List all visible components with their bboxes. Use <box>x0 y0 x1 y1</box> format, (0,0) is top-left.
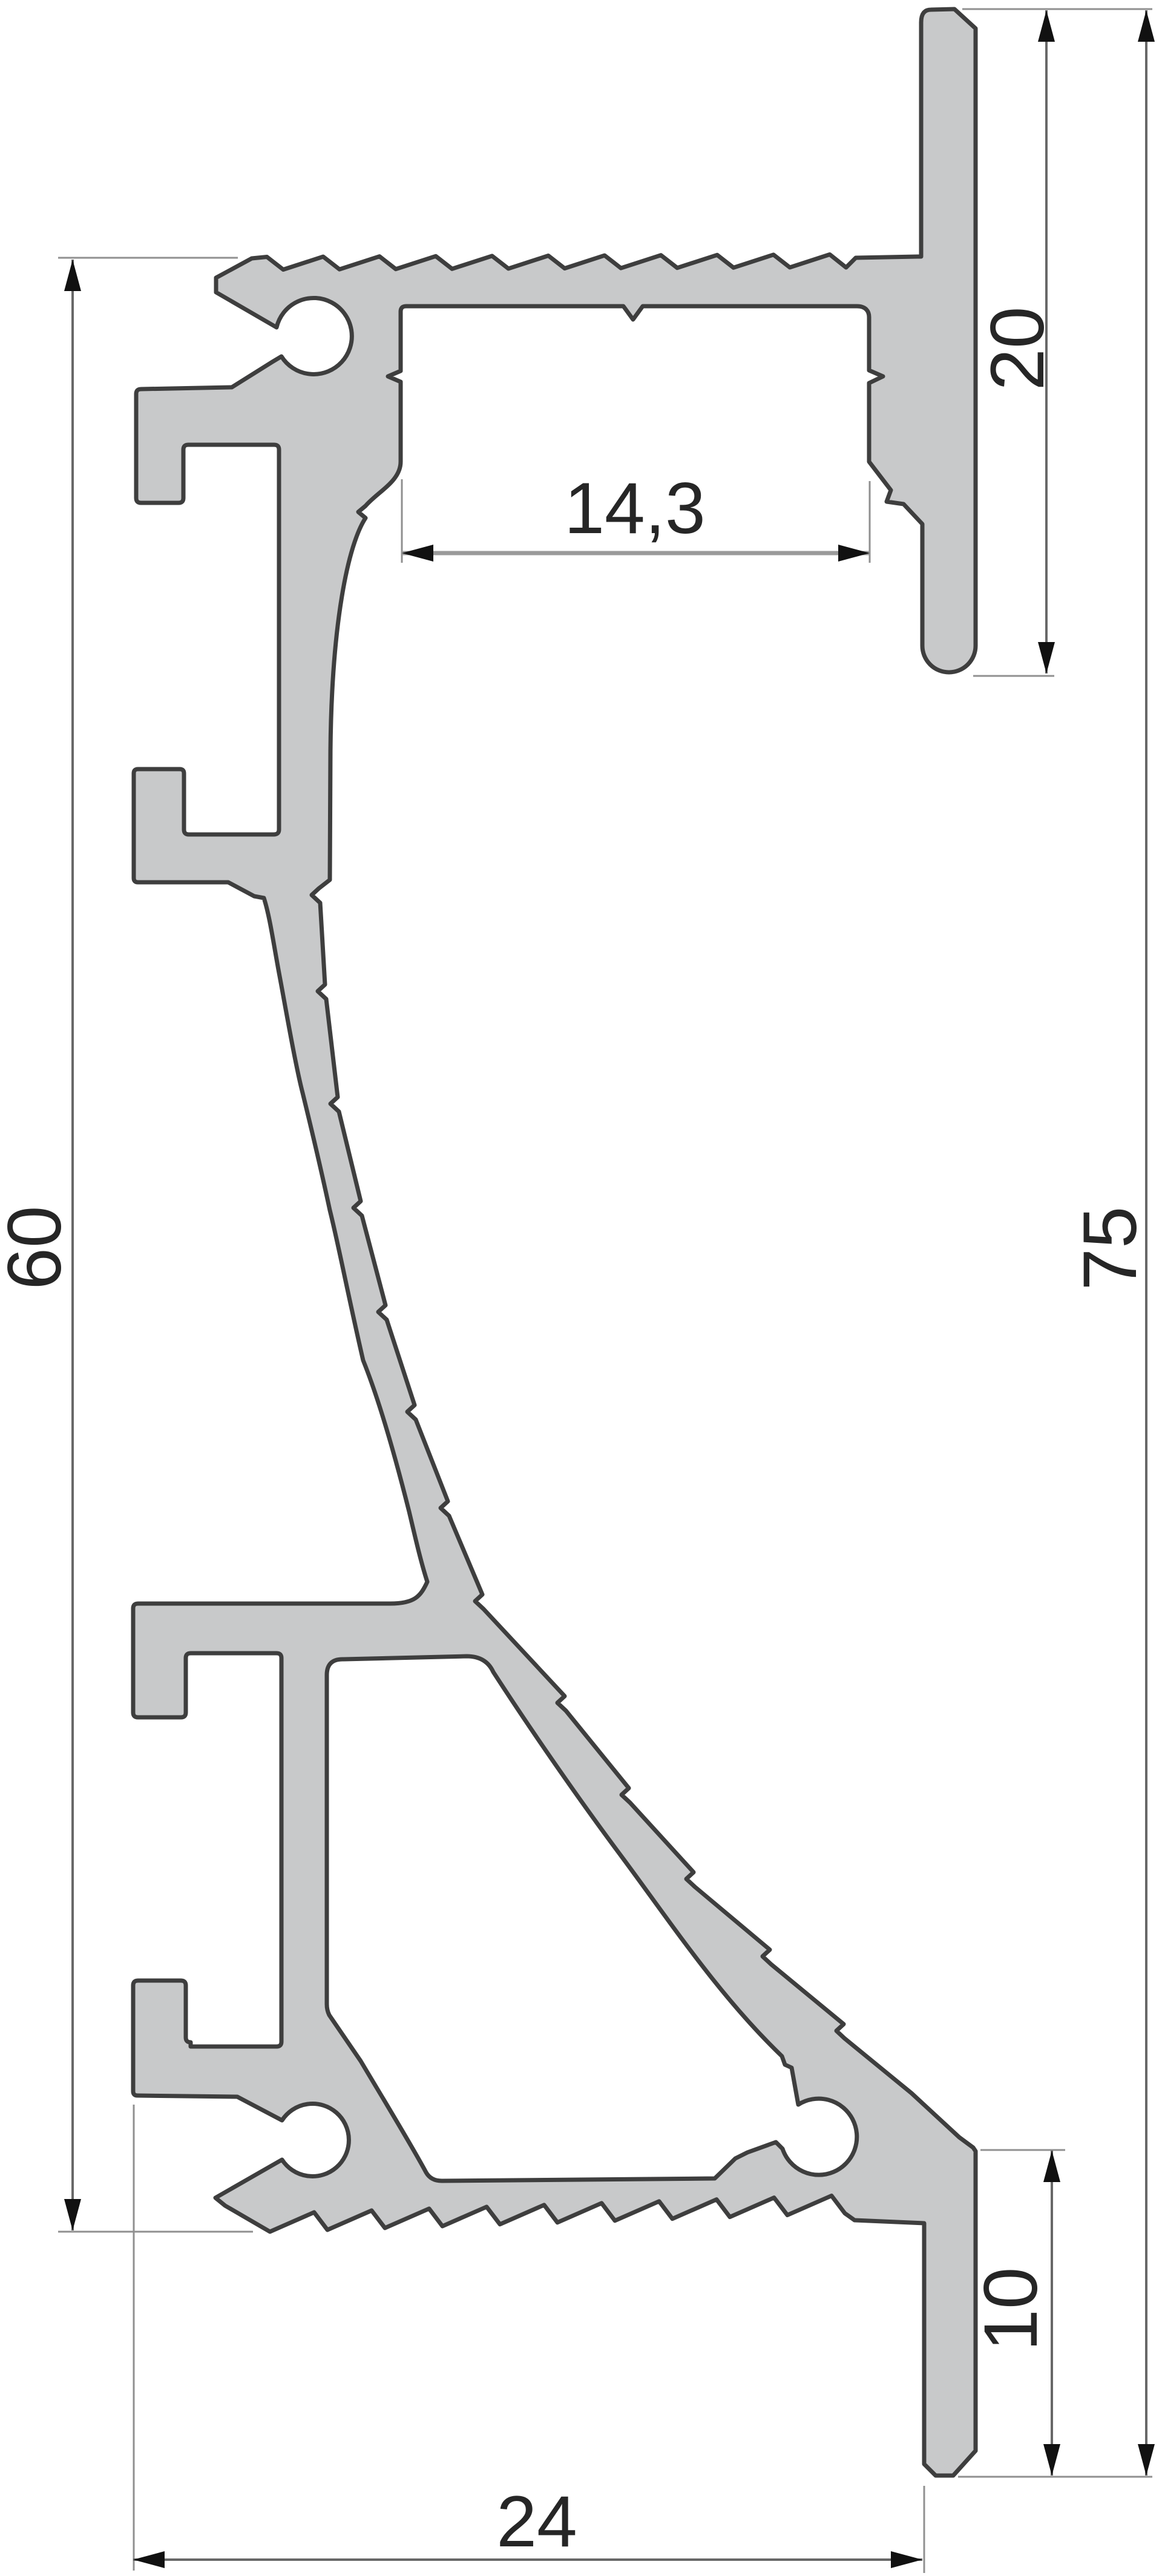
svg-text:20: 20 <box>976 306 1060 390</box>
svg-text:14,3: 14,3 <box>564 468 706 549</box>
svg-text:75: 75 <box>1068 1206 1152 1290</box>
svg-text:10: 10 <box>969 2267 1053 2351</box>
svg-text:24: 24 <box>496 2481 577 2562</box>
svg-text:60: 60 <box>0 1205 77 1290</box>
